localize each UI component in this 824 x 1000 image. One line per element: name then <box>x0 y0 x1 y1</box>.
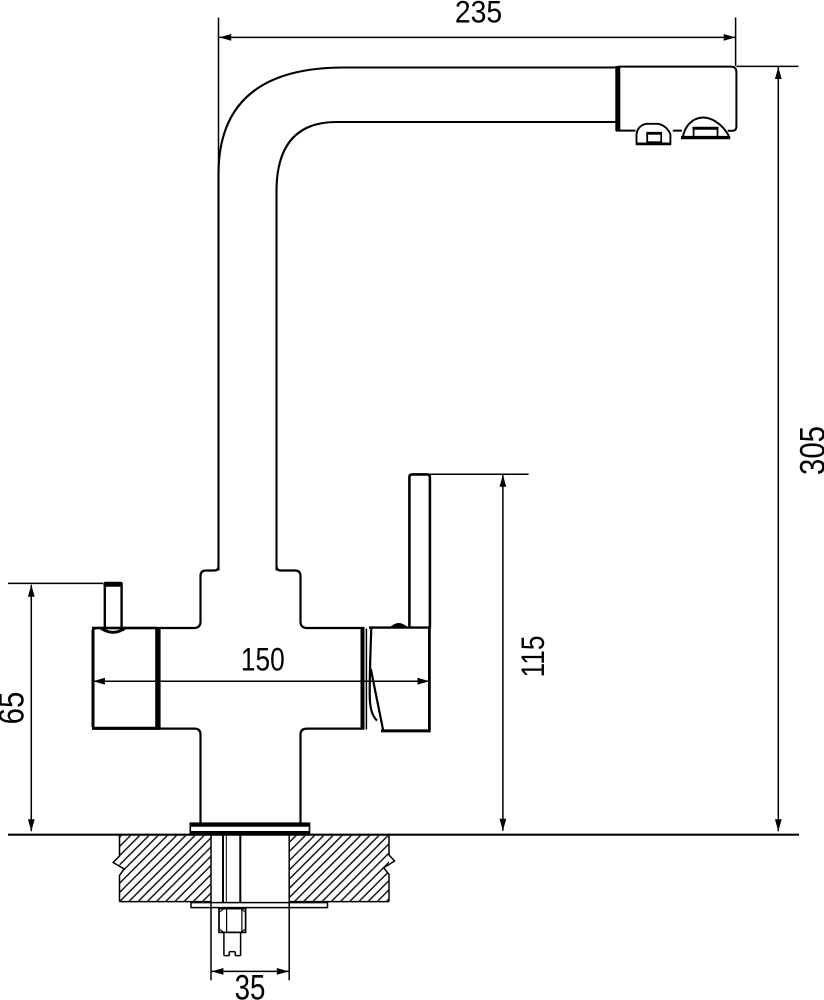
svg-text:150: 150 <box>241 643 285 678</box>
svg-text:305: 305 <box>793 426 824 475</box>
svg-text:65: 65 <box>0 692 31 725</box>
svg-text:35: 35 <box>235 967 266 1000</box>
svg-text:235: 235 <box>455 0 502 30</box>
svg-text:115: 115 <box>517 636 552 678</box>
